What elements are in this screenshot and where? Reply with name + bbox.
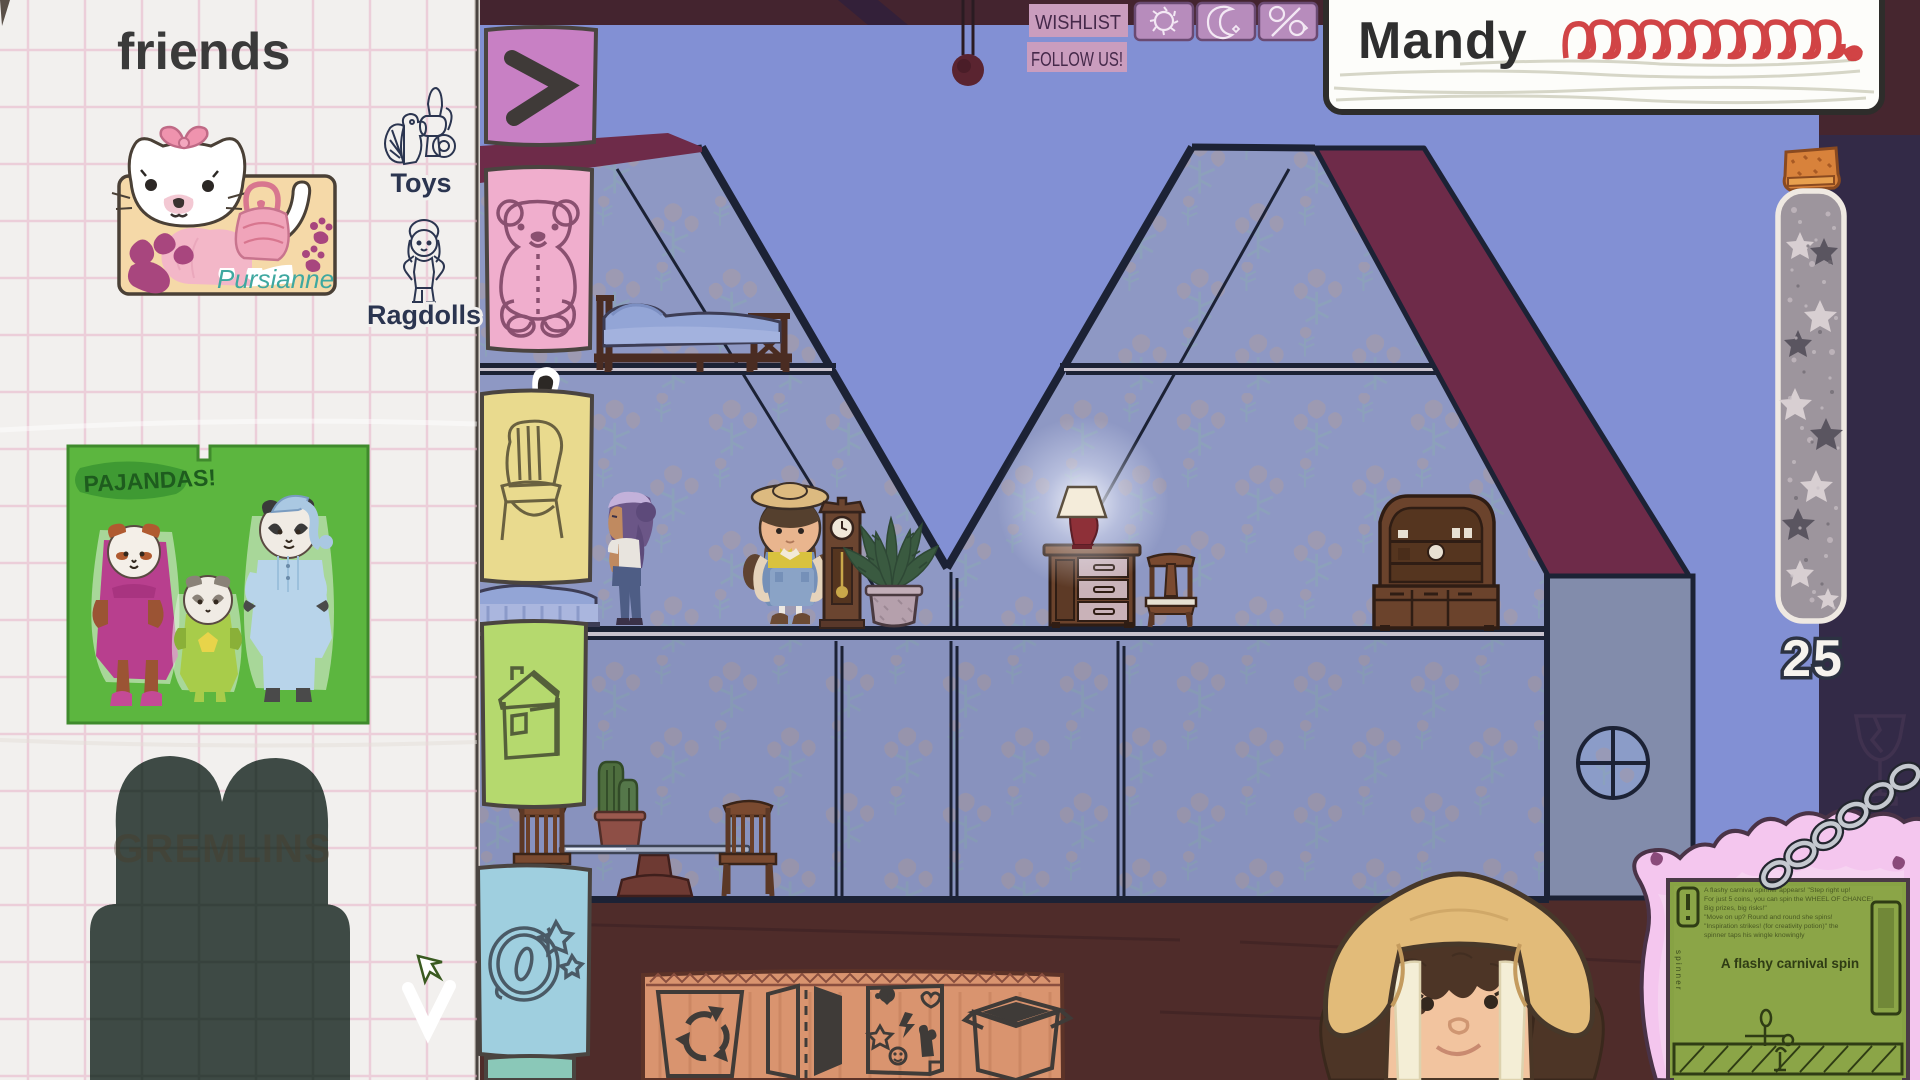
svg-text:For just 5 coins, you can spin: For just 5 coins, you can spin the WHEEL… xyxy=(1704,896,1873,903)
svg-text:FOLLOW US!: FOLLOW US! xyxy=(1031,49,1123,71)
svg-text:"Inspiration strikes! (for cre: "Inspiration strikes! (for creativity po… xyxy=(1704,923,1839,930)
svg-text:GREMLINS: GREMLINS xyxy=(112,827,331,871)
svg-text:Toys: Toys xyxy=(390,168,451,198)
svg-text:Ragdolls: Ragdolls xyxy=(367,300,481,330)
svg-text:Pursianne: Pursianne xyxy=(217,264,334,294)
svg-text:Mandy: Mandy xyxy=(1358,12,1528,70)
svg-text:25: 25 xyxy=(1782,630,1844,688)
svg-text:A flashy carnival spin: A flashy carnival spin xyxy=(1721,956,1859,971)
svg-text:WISHLIST: WISHLIST xyxy=(1035,12,1121,34)
svg-text:s p i n n e r: s p i n n e r xyxy=(1674,950,1683,990)
svg-text:Big prizes, big risks!": Big prizes, big risks!" xyxy=(1704,905,1767,912)
svg-text:spinner taps his wingle knowin: spinner taps his wingle knowingly xyxy=(1704,932,1805,939)
svg-text:friends: friends xyxy=(117,23,290,81)
svg-text:"Move on up? Round and round s: "Move on up? Round and round she spins! xyxy=(1704,914,1833,921)
